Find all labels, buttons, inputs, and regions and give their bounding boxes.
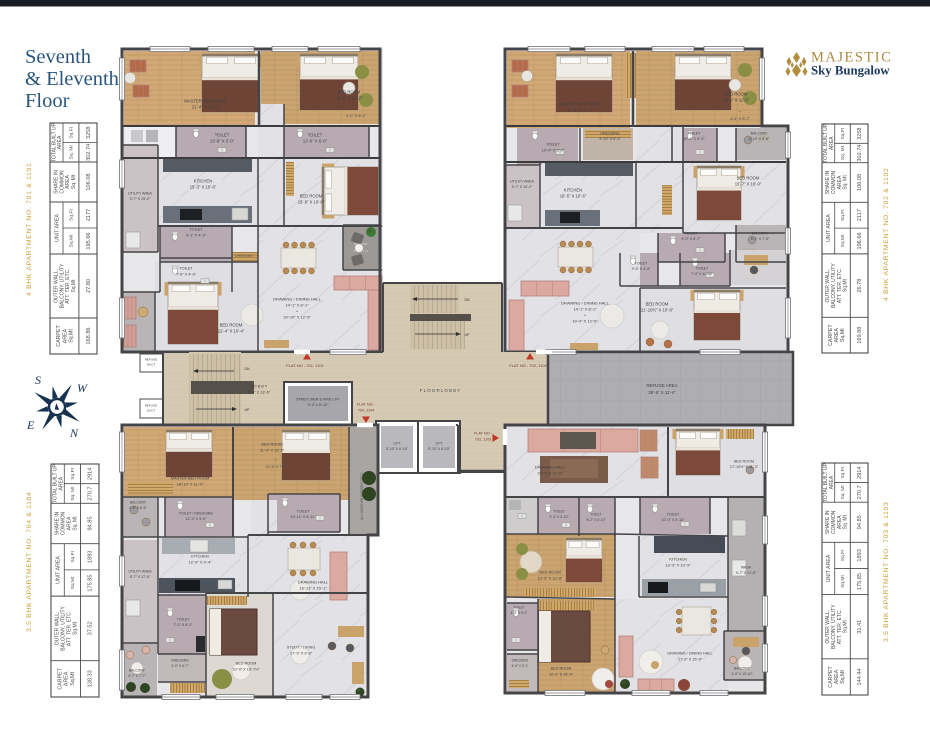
svg-text:Sq.Mt: Sq.Mt <box>69 329 75 343</box>
svg-text:AREA: AREA <box>834 327 840 342</box>
svg-text:TOILET: TOILET <box>590 512 601 516</box>
svg-text:196.66: 196.66 <box>857 232 863 249</box>
svg-text:TOILET: TOILET <box>667 512 680 516</box>
svg-text:16’-5” X 10’-6”: 16’-5” X 10’-6” <box>560 194 587 199</box>
svg-text:12’-5” X 12’-8”: 12’-5” X 12’-8” <box>538 575 563 580</box>
svg-text:5’-7” X 25’-2”: 5’-7” X 25’-2” <box>130 197 152 201</box>
svg-text:10’-0” X 5’-10”: 10’-0” X 5’-10” <box>662 518 686 522</box>
svg-text:2177: 2177 <box>86 209 92 221</box>
svg-text:2117: 2117 <box>857 209 863 221</box>
svg-text:37.52: 37.52 <box>88 621 94 635</box>
svg-text:BED ROOM: BED ROOM <box>261 441 282 446</box>
svg-text:AREA: AREA <box>64 671 70 686</box>
svg-text:9’-6” X 4’-9”: 9’-6” X 4’-9” <box>632 267 652 271</box>
svg-text:4’-0” X 6’-7”: 4’-0” X 6’-7” <box>171 664 189 668</box>
svg-text:4 BHK APARTMENT NO. 701 & 1101: 4 BHK APARTMENT NO. 701 & 1101 <box>26 163 33 296</box>
svg-text:Sq. Mt: Sq. Mt <box>70 486 76 501</box>
svg-text:9’-0” X 6’-7”: 9’-0” X 6’-7” <box>681 237 701 241</box>
svg-text:Sq. Mt: Sq. Mt <box>71 174 77 189</box>
svg-text:CARPET: CARPET <box>828 324 834 346</box>
svg-text:DRESSING: DRESSING <box>512 658 529 662</box>
svg-text:DRAWING / DINING HALL: DRAWING / DINING HALL <box>561 300 609 305</box>
svg-text:302.74: 302.74 <box>857 144 863 161</box>
svg-text:13’-6” X 6’-0”: 13’-6” X 6’-0” <box>303 139 328 144</box>
svg-text:TOILET: TOILET <box>688 131 702 135</box>
svg-text:DRESSING: DRESSING <box>171 658 189 662</box>
svg-text:4’-6” X 9’-2”: 4’-6” X 9’-2” <box>511 611 528 615</box>
svg-text:DUCT: DUCT <box>147 409 155 413</box>
svg-text:TOILET / DRESSING: TOILET / DRESSING <box>179 511 213 515</box>
svg-text:18’-10” X 11’-0”: 18’-10” X 11’-0” <box>177 481 204 486</box>
svg-text:TOILET: TOILET <box>177 617 191 621</box>
svg-text:AREA: AREA <box>829 475 835 489</box>
svg-text:106.08: 106.08 <box>86 173 92 190</box>
svg-text:4 BHK APARTMENT NO. 702 & 1102: 4 BHK APARTMENT NO. 702 & 1102 <box>883 168 890 301</box>
svg-text:ALL WEATHER WOODEN DECK: ALL WEATHER WOODEN DECK <box>360 472 364 520</box>
svg-text:5’-7” X 7’-7”: 5’-7” X 7’-7” <box>128 674 145 678</box>
svg-text:7’-0” X 9’-2”: 7’-0” X 9’-2” <box>173 623 193 627</box>
svg-text:15’-3” X 10’-6”: 15’-3” X 10’-6” <box>190 185 217 190</box>
svg-text:17’-10½” X 11’-3”: 17’-10½” X 11’-3” <box>730 465 759 469</box>
svg-text:5’-7” X 17’-6”: 5’-7” X 17’-6” <box>130 575 151 579</box>
svg-text:12’-9” X 9’-4”: 12’-9” X 9’-4” <box>188 560 212 565</box>
svg-text:MASTER BED ROOM: MASTER BED ROOM <box>559 101 601 106</box>
svg-text:DN: DN <box>245 367 250 371</box>
svg-text:Sq.Mt: Sq.Mt <box>840 328 846 342</box>
svg-text:5’-10” X 6’-10”: 5’-10” X 6’-10” <box>428 447 449 451</box>
svg-text:BED ROOM: BED ROOM <box>338 89 361 94</box>
svg-text:144.44: 144.44 <box>857 668 863 685</box>
svg-text:L O B B Y: L O B B Y <box>251 384 268 388</box>
svg-text:Floor: Floor <box>25 90 70 112</box>
svg-text:138.33: 138.33 <box>88 670 94 687</box>
svg-text:Sq.Ft: Sq.Ft <box>69 126 75 138</box>
svg-text:KITCHEN: KITCHEN <box>194 178 212 183</box>
svg-text:15’-7” X 10’-0”: 15’-7” X 10’-0” <box>735 182 762 187</box>
svg-text:19’-10” X 12’-5”: 19’-10” X 12’-5” <box>283 314 311 319</box>
svg-text:13’-3” X 10’-9”: 13’-3” X 10’-9” <box>665 563 691 568</box>
svg-text:3.5 BHK APARTMENT NO. 704 & 11: 3.5 BHK APARTMENT NO. 704 & 1104 <box>26 491 33 632</box>
svg-text:Sq. Mt: Sq. Mt <box>840 485 846 500</box>
svg-text:TOILET: TOILET <box>546 141 560 146</box>
svg-text:AREA: AREA <box>58 476 64 490</box>
svg-text:STRETCHER & FIRE LIFT: STRETCHER & FIRE LIFT <box>296 397 341 401</box>
svg-text:DRAWING HALL: DRAWING HALL <box>535 464 566 469</box>
svg-text:16’-1” X 11’-9”: 16’-1” X 11’-9” <box>723 98 750 103</box>
svg-text:STUDY / LIVING: STUDY / LIVING <box>287 645 315 649</box>
svg-text:BALCONY: BALCONY <box>130 500 147 504</box>
svg-text:TOILET: TOILET <box>635 261 648 265</box>
svg-text:TOILET: TOILET <box>189 227 203 231</box>
svg-text:39’-5” X 11’-4”: 39’-5” X 11’-4” <box>648 390 676 395</box>
svg-text:703, 1103: 703, 1103 <box>475 437 492 441</box>
svg-text:Sq.Ft: Sq.Ft <box>840 466 846 478</box>
svg-text:BED ROOM: BED ROOM <box>646 301 669 306</box>
svg-text:CARPET: CARPET <box>57 667 63 689</box>
svg-text:S: S <box>35 373 41 387</box>
svg-text:KITCHEN: KITCHEN <box>669 556 687 561</box>
svg-text:Sq. Mt: Sq. Mt <box>843 175 849 190</box>
svg-text:Sq.Mt: Sq.Mt <box>840 669 846 683</box>
svg-text:+: + <box>739 110 741 114</box>
svg-text:1893: 1893 <box>857 549 863 561</box>
svg-text:14’-1” X 8’-1”: 14’-1” X 8’-1” <box>573 306 597 311</box>
svg-text:FLAT NO - 701, 1101: FLAT NO - 701, 1101 <box>286 363 324 368</box>
svg-text:10’-6” X 7’-2”: 10’-6” X 7’-2” <box>266 465 288 469</box>
svg-text:DRAWING HALL: DRAWING HALL <box>298 579 329 584</box>
svg-text:168.86: 168.86 <box>86 327 92 344</box>
svg-text:UTILITY AREA: UTILITY AREA <box>128 191 153 195</box>
svg-text:5’-1” X 7’-3”: 5’-1” X 7’-3” <box>751 237 770 241</box>
svg-text:BED ROOM: BED ROOM <box>300 193 323 198</box>
svg-text:FLAT NO -: FLAT NO - <box>474 431 493 435</box>
svg-text:175.85: 175.85 <box>88 574 94 591</box>
svg-text:12’-4” X 10’-4”: 12’-4” X 10’-4” <box>218 329 245 334</box>
svg-text:Sq.Ft: Sq.Ft <box>69 209 75 221</box>
svg-text:KITCHEN: KITCHEN <box>191 553 209 558</box>
svg-text:Sq. Mt: Sq. Mt <box>843 514 849 529</box>
svg-text:31.41: 31.41 <box>857 620 863 634</box>
svg-text:DRAWING / DINING HALL: DRAWING / DINING HALL <box>273 296 321 301</box>
svg-text:MASTER BED ROOM: MASTER BED ROOM <box>184 98 226 103</box>
svg-text:FLAT NO - 702, 1102: FLAT NO - 702, 1102 <box>509 363 547 368</box>
svg-text:6’-5” X 5’-1”: 6’-5” X 5’-1” <box>512 664 529 668</box>
svg-text:UP: UP <box>245 408 250 412</box>
svg-text:270.7: 270.7 <box>88 487 94 501</box>
svg-text:E: E <box>26 418 35 432</box>
svg-text:WASH: WASH <box>741 565 752 569</box>
svg-text:UNIT AREA: UNIT AREA <box>55 556 61 584</box>
svg-text:UTILITY AREA: UTILITY AREA <box>128 569 152 573</box>
svg-text:5’-10” X 6’-10”: 5’-10” X 6’-10” <box>386 447 407 451</box>
svg-text:CARPET: CARPET <box>56 325 62 347</box>
svg-text:12’-2” X 16’-0”: 12’-2” X 16’-0” <box>549 672 574 676</box>
svg-text:302.74: 302.74 <box>86 144 92 161</box>
svg-text:DN: DN <box>465 298 470 302</box>
svg-text:5’-7” X 10’-0”: 5’-7” X 10’-0” <box>512 185 534 189</box>
svg-text:TOILET: TOILET <box>308 132 323 137</box>
svg-text:7’-9” X 6’-4½”: 7’-9” X 6’-4½” <box>691 272 714 276</box>
svg-text:CARPET: CARPET <box>828 665 834 687</box>
svg-text:10’-6” X 5’-0”: 10’-6” X 5’-0” <box>683 137 705 141</box>
svg-text:TOILET: TOILET <box>297 509 311 513</box>
svg-text:MASTER BED ROOM: MASTER BED ROOM <box>171 475 209 480</box>
svg-text:FLAT NO -: FLAT NO - <box>357 402 376 406</box>
svg-text:BED ROOM: BED ROOM <box>734 459 754 463</box>
svg-text:Sq.Mt: Sq.Mt <box>72 621 78 635</box>
svg-text:F L O O R L O B B Y: F L O O R L O B B Y <box>420 388 460 393</box>
svg-text:16’-11” X 15’-1”: 16’-11” X 15’-1” <box>299 586 327 591</box>
svg-text:TOILET: TOILET <box>513 605 524 609</box>
svg-text:TOILET: TOILET <box>553 509 564 513</box>
svg-text:4’-6” X 13’-10”: 4’-6” X 13’-10” <box>732 672 753 676</box>
svg-text:+: + <box>275 458 277 462</box>
svg-text:4’-6” X 6’-5”: 4’-6” X 6’-5” <box>129 506 146 510</box>
svg-text:11’-0” X 12’-5”: 11’-0” X 12’-5” <box>260 447 285 452</box>
svg-text:Sq.Mt: Sq.Mt <box>70 576 76 589</box>
svg-text:Sq.Mt: Sq.Mt <box>840 574 846 587</box>
svg-text:Sq.Ft: Sq.Ft <box>840 549 846 561</box>
svg-text:Sq.Mt: Sq.Mt <box>71 279 77 293</box>
svg-text:BED ROOM: BED ROOM <box>220 322 243 327</box>
svg-text:270.7: 270.7 <box>857 485 863 499</box>
svg-text:4’-10” X 5’-6”: 4’-10” X 5’-6” <box>749 137 770 141</box>
svg-text:106.08: 106.08 <box>857 174 863 191</box>
svg-text:Sq.Ft: Sq.Ft <box>70 467 76 479</box>
svg-text:TOILET: TOILET <box>215 132 230 137</box>
svg-text:10’-9” X 15’-7½”: 10’-9” X 15’-7½” <box>232 667 260 671</box>
svg-text:17’-9” X 15’-9”: 17’-9” X 15’-9” <box>678 657 703 661</box>
svg-text:UTILITY AREA: UTILITY AREA <box>510 179 535 183</box>
svg-text:REFUGE: REFUGE <box>145 403 158 407</box>
svg-text:DRESSING: DRESSING <box>235 254 253 258</box>
svg-text:UP: UP <box>465 333 470 337</box>
svg-text:27.80: 27.80 <box>86 279 92 293</box>
svg-text:BED ROOM: BED ROOM <box>725 91 748 96</box>
svg-text:& Eleventh: & Eleventh <box>25 68 119 90</box>
svg-text:TOILET: TOILET <box>179 266 193 270</box>
svg-text:AREA: AREA <box>57 135 63 149</box>
svg-text:21’-10½” X 10’-6”: 21’-10½” X 10’-6” <box>641 308 674 313</box>
svg-text:13’-8” X 5’-0”: 13’-8” X 5’-0” <box>210 139 235 144</box>
svg-text:5’-1” X 7’-3”: 5’-1” X 7’-3” <box>353 249 368 253</box>
svg-text:Sq. Mt: Sq. Mt <box>72 516 78 531</box>
svg-text:BALCONY: BALCONY <box>129 668 146 672</box>
svg-text:LIFT: LIFT <box>436 441 443 445</box>
svg-text:175.85: 175.85 <box>857 573 863 590</box>
svg-text:3258: 3258 <box>857 127 863 139</box>
svg-text:94.85: 94.85 <box>88 517 94 531</box>
svg-text:20’-3” X 11’-7”: 20’-3” X 11’-7” <box>567 108 594 113</box>
svg-text:Sq.Mt: Sq.Mt <box>843 278 849 292</box>
svg-text:7’-6” X 4’-9”: 7’-6” X 4’-9” <box>176 272 197 276</box>
svg-text:UNIT AREA: UNIT AREA <box>54 214 60 242</box>
svg-text:BED ROOM: BED ROOM <box>539 569 560 574</box>
svg-text:704, 1104: 704, 1104 <box>358 408 375 412</box>
svg-text:W: W <box>77 381 88 395</box>
svg-text:8’-1” X 13’-6”: 8’-1” X 13’-6” <box>248 390 271 394</box>
svg-text:Seventh: Seventh <box>25 46 91 68</box>
svg-text:Sq. Mt: Sq. Mt <box>840 145 846 160</box>
svg-text:BALCONY: BALCONY <box>752 231 769 235</box>
svg-text:AREA: AREA <box>829 136 835 150</box>
svg-text:UNIT AREA: UNIT AREA <box>826 554 832 582</box>
svg-text:BALCONY: BALCONY <box>354 242 368 246</box>
svg-text:AREA: AREA <box>62 328 68 343</box>
svg-text:Sq.Ft: Sq.Ft <box>70 550 76 562</box>
svg-text:REFUGE AREA: REFUGE AREA <box>646 383 677 388</box>
svg-text:Sky Bungalow: Sky Bungalow <box>811 64 890 78</box>
svg-text:Sq. Mt: Sq. Mt <box>69 145 75 160</box>
svg-text:BED ROOM: BED ROOM <box>551 666 572 670</box>
svg-text:4’-0” X 8’-2”: 4’-0” X 8’-2” <box>346 114 367 118</box>
svg-text:2914: 2914 <box>88 468 94 480</box>
svg-text:19’-4” X 12’-5”: 19’-4” X 12’-5” <box>572 318 598 323</box>
svg-text:AREA: AREA <box>834 669 840 684</box>
svg-text:Sq.Mt: Sq.Mt <box>840 234 846 247</box>
svg-text:15’-6” X 12’-2”: 15’-6” X 12’-2” <box>336 96 363 101</box>
svg-text:1893: 1893 <box>88 551 94 563</box>
svg-text:REFUGE: REFUGE <box>145 357 158 361</box>
svg-text:3258: 3258 <box>86 127 92 139</box>
svg-text:Sq.Ft: Sq.Ft <box>840 127 846 139</box>
svg-text:9’-10” X 6’-3”: 9’-10” X 6’-3” <box>599 137 621 141</box>
svg-text:5’-2” X 5’-10”: 5’-2” X 5’-10” <box>586 518 605 522</box>
svg-text:DRESSING: DRESSING <box>600 131 619 135</box>
svg-text:TOILET: TOILET <box>696 266 709 270</box>
svg-text:169.88: 169.88 <box>857 327 863 344</box>
svg-text:Sq.Ft: Sq.Ft <box>840 209 846 221</box>
svg-text:UNIT AREA: UNIT AREA <box>826 214 832 242</box>
svg-text:12’-4” X 5’-0”: 12’-4” X 5’-0” <box>186 517 208 521</box>
svg-text:9’-1” X 4’-3”: 9’-1” X 4’-3” <box>186 233 207 237</box>
svg-text:21’-4” X 11’-9”: 21’-4” X 11’-9” <box>192 105 219 110</box>
svg-text:Sq.Mt: Sq.Mt <box>70 671 76 685</box>
svg-text:94.85: 94.85 <box>857 515 863 529</box>
svg-text:14’-1” X 8’-1”: 14’-1” X 8’-1” <box>285 302 309 307</box>
svg-text:BALCONY: BALCONY <box>734 666 751 670</box>
svg-text:BED ROOM: BED ROOM <box>236 661 257 665</box>
svg-text:9’-3” X 3’-10”: 9’-3” X 3’-10” <box>549 515 568 519</box>
svg-text:17’-3” X 9’-8”: 17’-3” X 9’-8” <box>290 651 313 655</box>
svg-text:3.5 BHK APARTMENT NO. 703 & 11: 3.5 BHK APARTMENT NO. 703 & 1103 <box>883 501 890 642</box>
svg-text:N: N <box>69 426 79 440</box>
svg-text:BED ROOM: BED ROOM <box>737 175 760 180</box>
svg-text:Sq.Mt: Sq.Mt <box>843 620 849 634</box>
svg-text:Sq.Mt: Sq.Mt <box>69 234 75 247</box>
svg-text:2914: 2914 <box>857 467 863 479</box>
svg-text:9’-2” x 5’-10”: 9’-2” x 5’-10” <box>308 403 329 407</box>
svg-text:15’-9” X 10’-0”: 15’-9” X 10’-0” <box>298 200 325 205</box>
svg-text:195.66: 195.66 <box>86 232 92 249</box>
svg-text:26.78: 26.78 <box>857 279 863 293</box>
svg-text:9’-7” X 21’-6”: 9’-7” X 21’-6” <box>736 571 757 575</box>
svg-text:DRAWING / DINING HALL: DRAWING / DINING HALL <box>667 651 712 655</box>
svg-text:10’-11” X 5’-11”: 10’-11” X 5’-11” <box>291 515 317 519</box>
svg-text:10’-0” X 5’-0”: 10’-0” X 5’-0” <box>542 147 565 152</box>
svg-text:TOILET: TOILET <box>685 231 699 235</box>
svg-text:27’-7” X 11’-0”: 27’-7” X 11’-0” <box>537 471 563 476</box>
svg-text:BALCONY: BALCONY <box>751 131 768 135</box>
svg-text:KITCHEN: KITCHEN <box>564 187 582 192</box>
svg-text:4’-4” X 8’-7”: 4’-4” X 8’-7” <box>730 117 751 121</box>
svg-text:LIFT: LIFT <box>394 441 401 445</box>
svg-text:DUCT: DUCT <box>147 363 155 367</box>
